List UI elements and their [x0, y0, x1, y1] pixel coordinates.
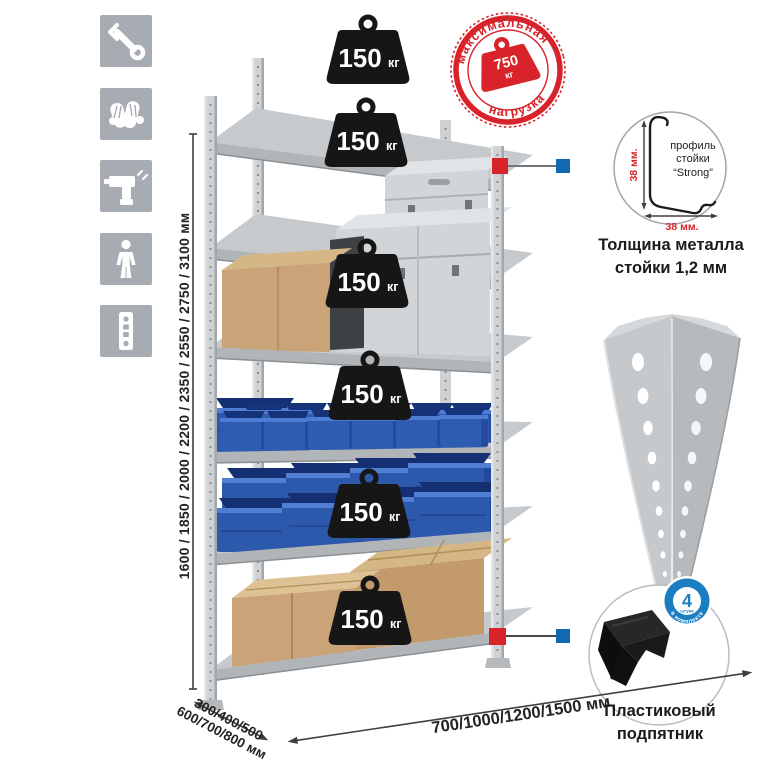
callout-profile: [492, 158, 570, 174]
callout-blue-square: [556, 629, 570, 643]
foot-caption-line1: Пластиковый: [585, 700, 735, 723]
weight-badge-1: 150 кг: [327, 17, 410, 84]
profile-label-3: “Strong”: [673, 167, 713, 179]
svg-text:кг: кг: [389, 510, 400, 524]
profile-detail: 38 мм. 38 мм. профиль стойки “Strong”: [614, 112, 726, 233]
scene: 150 кг 150 кг 150 кг 150 кг: [0, 0, 765, 765]
badge-small-text: штуки: [680, 609, 694, 614]
svg-text:150: 150: [337, 267, 380, 297]
callout-red-square: [489, 628, 506, 645]
svg-text:кг: кг: [390, 617, 401, 631]
foot-caption-line2: подпятник: [585, 723, 735, 746]
callout-blue-square: [556, 159, 570, 173]
weight-unit: кг: [388, 56, 399, 70]
svg-text:кг: кг: [390, 392, 401, 406]
svg-text:кг: кг: [386, 139, 397, 153]
svg-text:150: 150: [336, 126, 379, 156]
foot-caption: Пластиковый подпятник: [585, 700, 735, 747]
max-load-stamp: максимальная нагрузка 750 кг: [436, 0, 579, 142]
svg-text:150: 150: [340, 604, 383, 634]
callout-foot: [489, 628, 570, 645]
profile-caption-line2: стойки 1,2 мм: [585, 257, 757, 280]
foot-right: [485, 658, 511, 668]
svg-text:150: 150: [340, 379, 383, 409]
weight-badge-2: 150 кг: [325, 100, 408, 167]
profile-label-1: профиль: [670, 140, 716, 152]
profile-dim-horizontal: 38 мм.: [665, 221, 698, 233]
shelving-infographic: 150 кг 150 кг 150 кг 150 кг: [0, 0, 765, 765]
profile-caption-line1: Толщина металла: [585, 234, 757, 257]
profile-label-2: стойки: [676, 153, 710, 165]
profile-caption: Толщина металла стойки 1,2 мм: [585, 234, 757, 281]
weight-value: 150: [338, 43, 381, 73]
height-dimension-label: 1600 / 1850 / 2000 / 2200 / 2350 / 2550 …: [172, 116, 196, 676]
profile-dim-vertical: 38 мм.: [628, 148, 640, 181]
quantity-badge: 4 штуки в комплекте: [662, 576, 712, 626]
svg-text:кг: кг: [387, 280, 398, 294]
svg-text:150: 150: [339, 497, 382, 527]
callout-red-square: [492, 158, 508, 174]
